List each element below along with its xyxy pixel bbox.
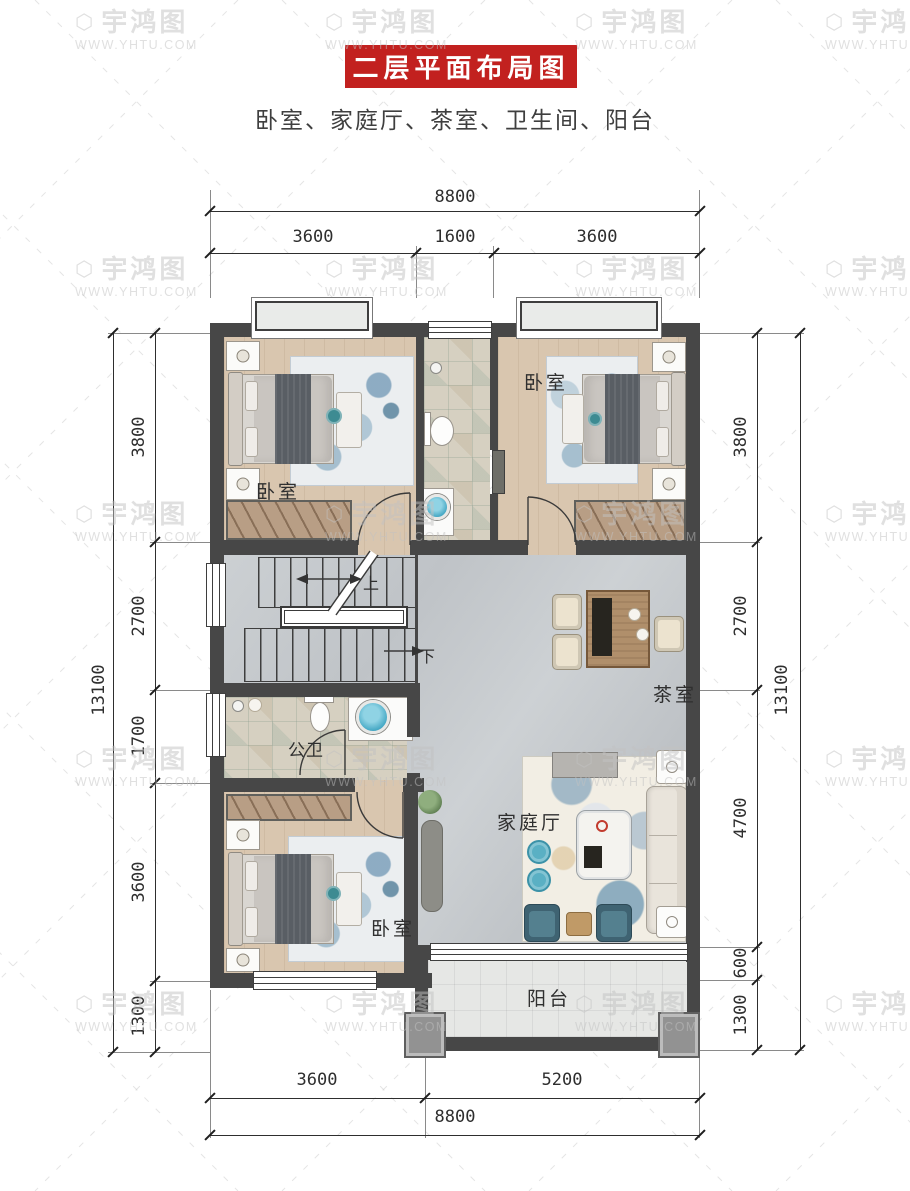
coffee-table-tray: [584, 846, 602, 868]
room-label-family-hall: 家庭厅: [497, 808, 563, 835]
extension-line: [700, 690, 760, 691]
watermark-brand: ⬡宇鸿图: [75, 500, 198, 529]
armchair: [524, 904, 560, 942]
dimension-line: [210, 211, 700, 212]
stairs-upper-flight: [258, 557, 415, 608]
watermark-brand: ⬡宇鸿图: [825, 8, 910, 37]
extension-line: [150, 542, 210, 543]
tea-chair: [552, 594, 582, 630]
watermark-logo-icon: ⬡: [75, 11, 96, 34]
small-sink: [248, 698, 262, 712]
window: [428, 321, 492, 339]
extension-line: [108, 1052, 210, 1053]
extension-line: [210, 190, 211, 298]
tea-chair: [654, 616, 684, 652]
extension-line: [700, 947, 760, 948]
wall: [407, 683, 420, 737]
dimension-line: [757, 333, 758, 1050]
window: [206, 563, 226, 627]
room-label-bedroom: 卧室: [524, 368, 568, 395]
room-label-bedroom: 卧室: [256, 477, 300, 504]
tea-cup: [628, 608, 641, 621]
small-wood-table: [566, 912, 592, 936]
dimension-line: [210, 253, 700, 254]
nightstand: [226, 341, 260, 371]
console-table: [421, 820, 443, 912]
wall: [410, 540, 498, 555]
tea-cup: [636, 628, 649, 641]
watermark-brand-text: 宇鸿图: [101, 255, 188, 284]
dim-top-segment: 1600: [435, 227, 476, 247]
watermark-brand: ⬡宇鸿图: [325, 255, 448, 284]
dim-right-segment: 2700: [731, 596, 751, 637]
dim-bottom-segment: 5200: [542, 1070, 583, 1090]
watermark: ⬡宇鸿图WWW.YHTU.COM: [325, 255, 448, 299]
bed-bench: [562, 394, 584, 444]
page-title-banner: 二层平面布局图: [345, 45, 577, 88]
tv-console: [552, 752, 618, 778]
stair-down-label: 下: [419, 643, 435, 667]
watermark-brand: ⬡宇鸿图: [325, 8, 448, 37]
watermark: ⬡宇鸿图WWW.YHTU.COM: [575, 255, 698, 299]
nightstand: [226, 948, 260, 972]
watermark: ⬡宇鸿图WWW.YHTU.COM: [825, 990, 910, 1034]
watermark-logo-icon: ⬡: [825, 503, 846, 526]
watermark-diagonal: [0, 0, 238, 1191]
dim-bottom-segment: 3600: [297, 1070, 338, 1090]
plant: [418, 790, 442, 814]
tea-chair: [552, 634, 582, 670]
nightstand: [226, 820, 260, 850]
pillow: [656, 381, 669, 411]
watermark-logo-icon: ⬡: [75, 993, 96, 1016]
side-table: [656, 906, 688, 938]
basin-sink: [356, 700, 390, 734]
watermark: ⬡宇鸿图WWW.YHTU.COM: [825, 255, 910, 299]
bathroom-door: [492, 450, 505, 494]
watermark-brand: ⬡宇鸿图: [825, 255, 910, 284]
pouf: [527, 840, 551, 864]
pillow: [656, 427, 669, 457]
nightstand: [652, 468, 686, 500]
watermark-brand-text: 宇鸿图: [101, 8, 188, 37]
watermark-url: WWW.YHTU.COM: [75, 775, 198, 789]
dimension-line: [800, 333, 801, 1050]
stairs-lower-flight: [244, 628, 415, 682]
watermark: ⬡宇鸿图WWW.YHTU.COM: [75, 500, 198, 544]
bed: [228, 372, 334, 466]
pillow: [245, 381, 258, 411]
dim-left-segment: 1300: [129, 996, 149, 1037]
watermark-logo-icon: ⬡: [325, 258, 346, 281]
balcony-column: [658, 1012, 700, 1058]
bed-headboard: [671, 372, 686, 466]
page-title: 二层平面布局图: [352, 48, 569, 85]
watermark-brand-text: 宇鸿图: [851, 255, 910, 284]
window: [253, 971, 377, 990]
window: [430, 943, 688, 961]
wardrobe: [226, 794, 352, 821]
watermark-logo-icon: ⬡: [75, 748, 96, 771]
watermark-url: WWW.YHTU.COM: [825, 38, 910, 52]
bed-bench: [336, 872, 362, 926]
dim-top-segment: 3600: [577, 227, 618, 247]
extension-line: [700, 542, 760, 543]
dim-left-total: 13100: [89, 664, 109, 715]
watermark: ⬡宇鸿图WWW.YHTU.COM: [825, 745, 910, 789]
decor-ring: [596, 820, 608, 832]
extension-line: [150, 690, 210, 691]
watermark-diagonal: [776, 0, 910, 1191]
wall: [210, 323, 224, 988]
watermark-brand: ⬡宇鸿图: [825, 500, 910, 529]
watermark: ⬡宇鸿图WWW.YHTU.COM: [825, 8, 910, 52]
wall: [490, 337, 498, 450]
pillow: [245, 907, 258, 937]
wardrobe: [574, 500, 686, 542]
balcony-column: [404, 1012, 446, 1058]
watermark-brand-text: 宇鸿图: [851, 745, 910, 774]
wall: [416, 337, 424, 555]
watermark-logo-icon: ⬡: [75, 503, 96, 526]
bed: [228, 852, 334, 946]
dim-right-segment: 4700: [731, 798, 751, 839]
pillow: [245, 861, 258, 891]
watermark-brand-text: 宇鸿图: [851, 8, 910, 37]
dim-top-segment: 3600: [293, 227, 334, 247]
extension-line: [108, 333, 210, 334]
room-label-bedroom: 卧室: [371, 914, 415, 941]
watermark-logo-icon: ⬡: [75, 258, 96, 281]
watermark-brand-text: 宇鸿图: [351, 8, 438, 37]
watermark-brand-text: 宇鸿图: [851, 990, 910, 1019]
wall: [210, 683, 420, 697]
stair-up-label: 上: [363, 570, 379, 594]
page-subtitle: 卧室、家庭厅、茶室、卫生间、阳台: [0, 101, 910, 135]
watermark-brand: ⬡宇鸿图: [75, 8, 198, 37]
decor-vase: [326, 408, 342, 424]
watermark-brand: ⬡宇鸿图: [825, 745, 910, 774]
pouf: [527, 868, 551, 892]
watermark-brand-text: 宇鸿图: [351, 255, 438, 284]
bay-window-glass: [255, 301, 369, 331]
watermark-logo-icon: ⬡: [575, 11, 596, 34]
bed-headboard: [228, 372, 243, 466]
toilet: [310, 702, 330, 732]
shower-head: [430, 362, 442, 374]
bed-runner: [605, 374, 640, 464]
dimension-line: [210, 1098, 700, 1099]
watermark-diagonal: [776, 0, 910, 1191]
watermark-logo-icon: ⬡: [575, 258, 596, 281]
watermark-logo-icon: ⬡: [825, 11, 846, 34]
watermark-brand: ⬡宇鸿图: [575, 8, 698, 37]
watermark-diagonal: [0, 0, 238, 1191]
extension-line: [700, 1050, 804, 1051]
bay-window-glass: [520, 301, 658, 331]
watermark-url: WWW.YHTU.COM: [825, 530, 910, 544]
watermark-brand: ⬡宇鸿图: [75, 255, 198, 284]
room-label-tea-room: 茶室: [653, 680, 697, 707]
decor-vase: [326, 886, 341, 901]
watermark: ⬡宇鸿图WWW.YHTU.COM: [575, 8, 698, 52]
dim-left-segment: 2700: [129, 596, 149, 637]
watermark-url: WWW.YHTU.COM: [75, 285, 198, 299]
shower-head: [232, 700, 244, 712]
extension-line: [150, 981, 210, 982]
dim-right-segment: 1300: [731, 995, 751, 1036]
watermark-url: WWW.YHTU.COM: [75, 38, 198, 52]
watermark-brand-text: 宇鸿图: [851, 500, 910, 529]
watermark: ⬡宇鸿图WWW.YHTU.COM: [75, 8, 198, 52]
watermark-logo-icon: ⬡: [325, 11, 346, 34]
wall: [686, 323, 700, 962]
watermark-logo-icon: ⬡: [325, 993, 346, 1016]
dim-bottom-total: 8800: [435, 1107, 476, 1127]
extension-line: [699, 190, 700, 298]
toilet: [430, 416, 454, 446]
side-table: [656, 750, 688, 784]
wall: [403, 778, 424, 792]
watermark-brand-text: 宇鸿图: [601, 255, 688, 284]
wall: [415, 555, 418, 685]
watermark-brand: ⬡宇鸿图: [825, 990, 910, 1019]
wardrobe: [226, 500, 352, 540]
extension-line: [210, 990, 211, 1138]
nightstand: [226, 468, 260, 500]
watermark-logo-icon: ⬡: [825, 748, 846, 771]
room-label-balcony: 阳台: [527, 984, 571, 1011]
bed-runner: [275, 854, 311, 944]
sink: [424, 494, 450, 520]
watermark: ⬡宇鸿图WWW.YHTU.COM: [825, 500, 910, 544]
watermark-logo-icon: ⬡: [825, 993, 846, 1016]
dimension-line: [155, 333, 156, 1052]
bed-headboard: [228, 852, 243, 946]
extension-line: [700, 333, 804, 334]
watermark-brand: ⬡宇鸿图: [575, 255, 698, 284]
wall: [210, 778, 355, 792]
watermark-brand-text: 宇鸿图: [601, 8, 688, 37]
window: [206, 693, 226, 757]
watermark-url: WWW.YHTU.COM: [825, 1020, 910, 1034]
wall: [210, 540, 358, 555]
armchair: [596, 904, 632, 942]
dim-left-segment: 3800: [129, 417, 149, 458]
dim-right-segment: 3800: [731, 417, 751, 458]
floor-plan-page: 二层平面布局图 卧室、家庭厅、茶室、卫生间、阳台: [0, 0, 910, 1191]
dimension-line: [113, 333, 114, 1052]
dim-right-segment: 600: [731, 948, 751, 979]
stairs-handrail: [280, 606, 408, 628]
watermark-logo-icon: ⬡: [825, 258, 846, 281]
wall: [576, 540, 700, 555]
watermark-url: WWW.YHTU.COM: [825, 775, 910, 789]
dim-left-segment: 3600: [129, 862, 149, 903]
tea-tray: [592, 598, 612, 656]
dim-right-total: 13100: [772, 664, 792, 715]
extension-line: [700, 980, 760, 981]
watermark-brand-text: 宇鸿图: [101, 500, 188, 529]
nightstand: [652, 342, 686, 372]
pillow: [245, 427, 258, 457]
decor-vase: [588, 412, 602, 426]
watermark: ⬡宇鸿图WWW.YHTU.COM: [75, 255, 198, 299]
dim-top-total: 8800: [435, 187, 476, 207]
bed-runner: [275, 374, 311, 464]
extension-line: [150, 783, 210, 784]
dim-left-segment: 1700: [129, 716, 149, 757]
watermark-url: WWW.YHTU.COM: [825, 285, 910, 299]
room-label-public-bathroom: 公卫: [288, 736, 324, 761]
wall: [498, 540, 528, 555]
dimension-line: [210, 1135, 700, 1136]
watermark-url: WWW.YHTU.COM: [575, 38, 698, 52]
